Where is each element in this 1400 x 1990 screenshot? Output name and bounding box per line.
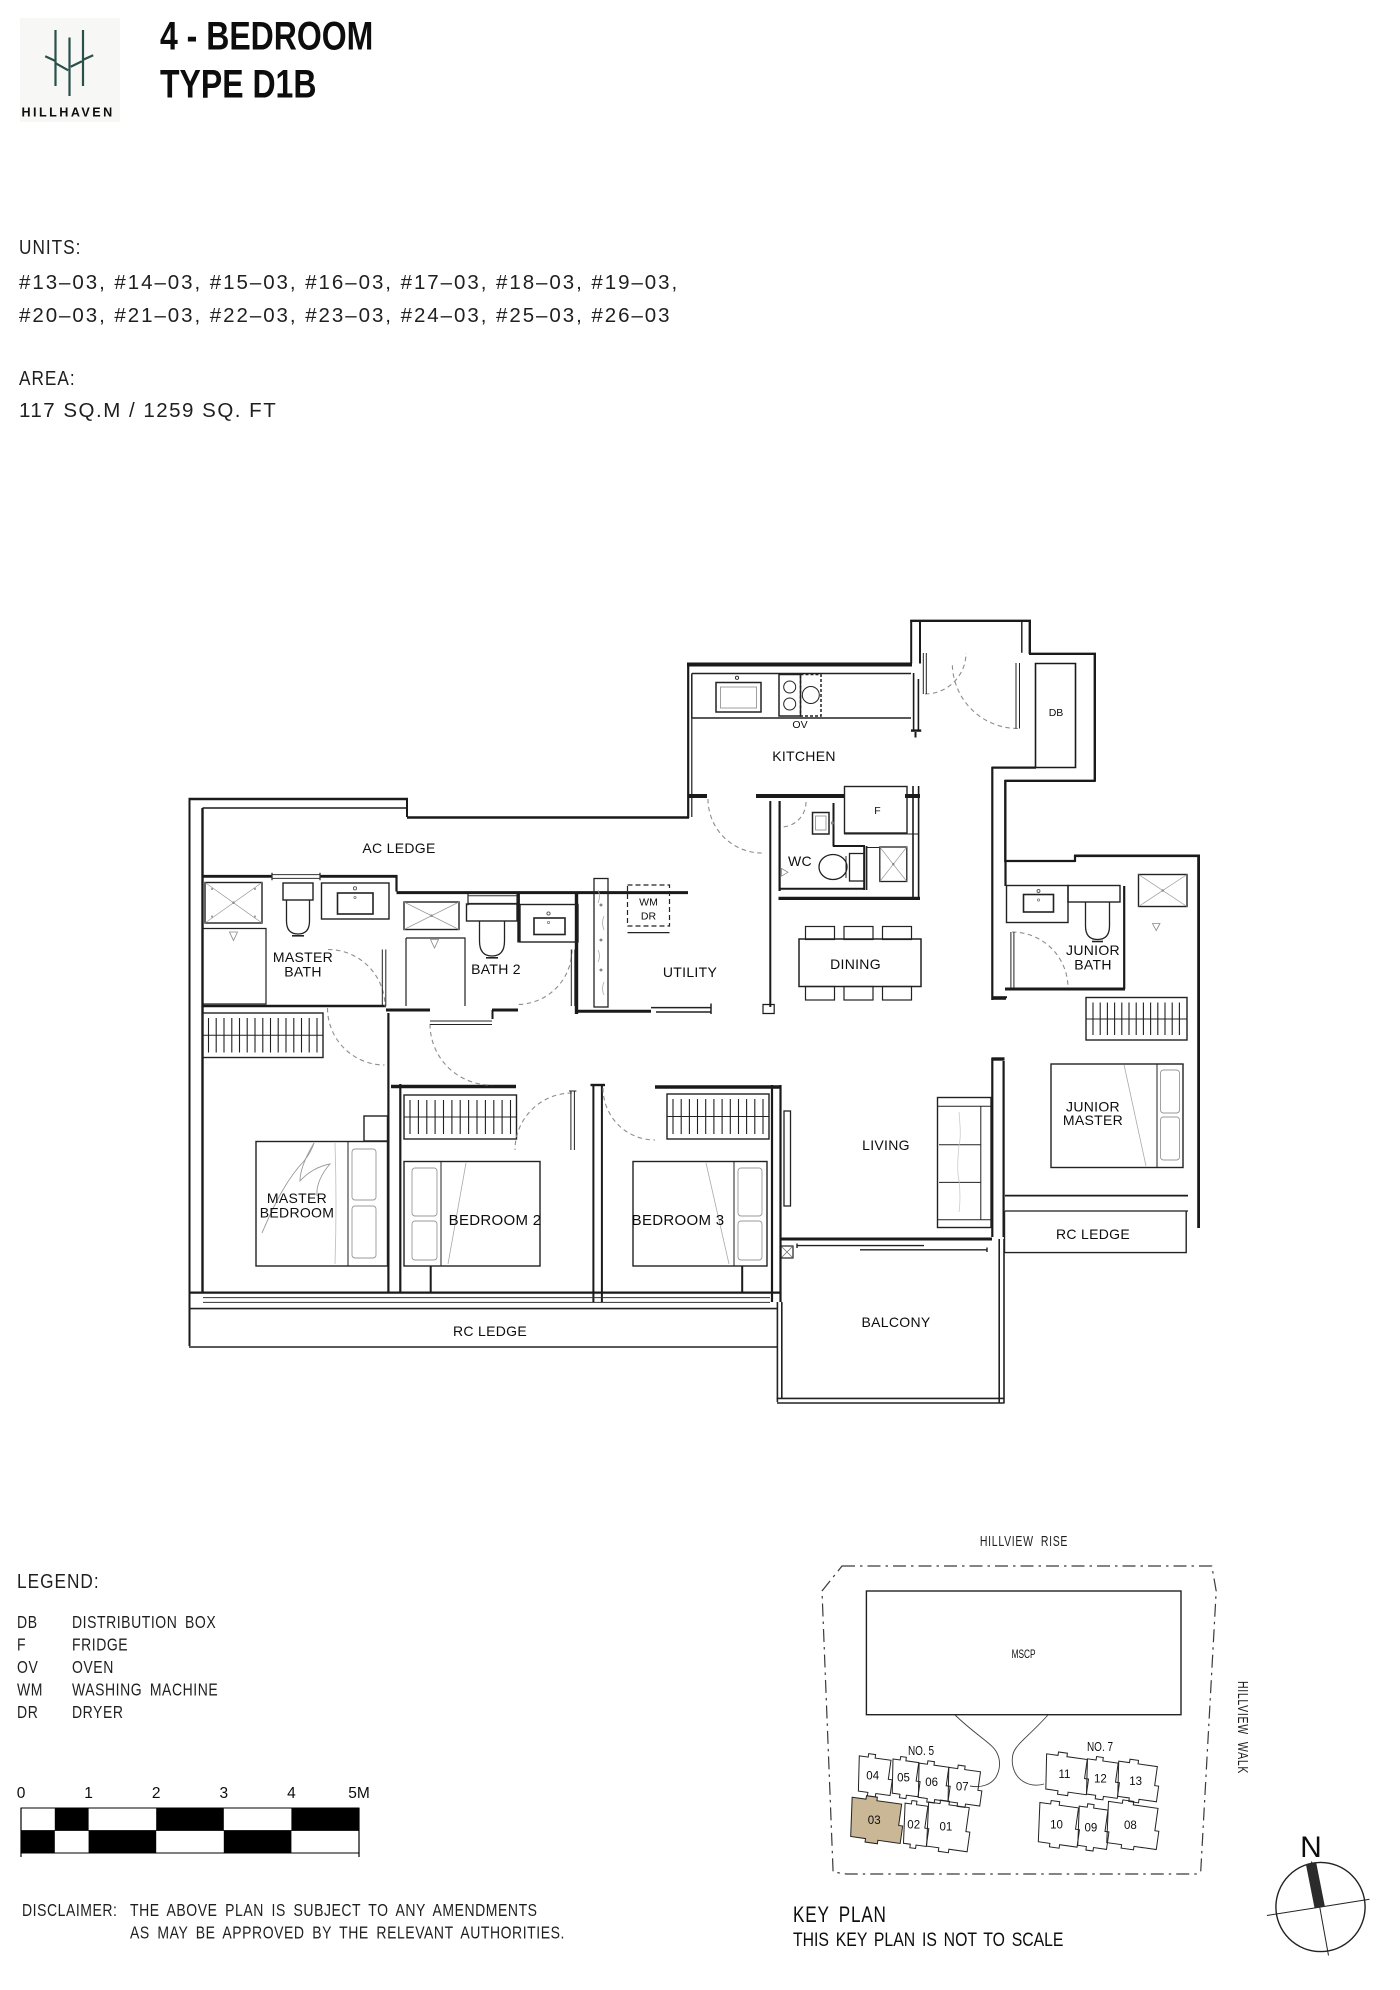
svg-text:4: 4 bbox=[287, 1785, 296, 1802]
svg-text:OV: OV bbox=[17, 1659, 38, 1678]
svg-text:MASTER: MASTER bbox=[1063, 1112, 1123, 1128]
svg-text:WM: WM bbox=[639, 897, 658, 909]
svg-text:WM: WM bbox=[17, 1681, 43, 1700]
svg-text:DISTRIBUTION BOX: DISTRIBUTION BOX bbox=[72, 1614, 216, 1633]
svg-text:117 SQ.M / 1259 SQ. FT: 117 SQ.M / 1259 SQ. FT bbox=[19, 399, 277, 422]
svg-text:OV: OV bbox=[792, 719, 807, 731]
svg-text:3: 3 bbox=[219, 1785, 228, 1802]
svg-text:THE ABOVE PLAN IS SUBJECT TO A: THE ABOVE PLAN IS SUBJECT TO ANY AMENDME… bbox=[130, 1902, 538, 1921]
svg-text:DR: DR bbox=[641, 911, 657, 923]
svg-text:06: 06 bbox=[925, 1777, 938, 1789]
svg-text:F: F bbox=[874, 805, 880, 817]
svg-text:07: 07 bbox=[956, 1781, 969, 1793]
svg-text:DINING: DINING bbox=[830, 956, 881, 972]
svg-text:NO. 7: NO. 7 bbox=[1087, 1741, 1113, 1754]
svg-text:DR: DR bbox=[17, 1704, 38, 1723]
svg-text:BATH: BATH bbox=[1074, 956, 1112, 972]
svg-text:04: 04 bbox=[866, 1770, 879, 1782]
svg-text:BATH 2: BATH 2 bbox=[471, 961, 521, 977]
svg-text:OVEN: OVEN bbox=[72, 1659, 114, 1678]
svg-text:12: 12 bbox=[1094, 1773, 1107, 1785]
svg-text:TYPE D1B: TYPE D1B bbox=[160, 61, 316, 106]
svg-text:2: 2 bbox=[152, 1785, 161, 1802]
svg-text:10: 10 bbox=[1050, 1820, 1063, 1832]
svg-text:09: 09 bbox=[1085, 1822, 1098, 1834]
svg-text:RC LEDGE: RC LEDGE bbox=[1056, 1226, 1130, 1242]
svg-text:DB: DB bbox=[17, 1614, 38, 1633]
svg-text:0: 0 bbox=[17, 1785, 26, 1802]
svg-text:1: 1 bbox=[84, 1785, 93, 1802]
svg-text:BEDROOM 3: BEDROOM 3 bbox=[632, 1212, 725, 1229]
svg-text:4 - BEDROOM: 4 - BEDROOM bbox=[160, 13, 373, 58]
svg-text:UNITS:: UNITS: bbox=[19, 237, 81, 260]
svg-text:HILLVIEW WALK: HILLVIEW WALK bbox=[1235, 1681, 1252, 1774]
svg-text:02: 02 bbox=[907, 1820, 920, 1832]
svg-text:BATH: BATH bbox=[284, 964, 322, 980]
svg-text:HILLVIEW RISE: HILLVIEW RISE bbox=[980, 1532, 1068, 1549]
svg-text:BEDROOM: BEDROOM bbox=[260, 1205, 334, 1221]
svg-text:03: 03 bbox=[868, 1815, 881, 1827]
svg-text:AC LEDGE: AC LEDGE bbox=[362, 840, 435, 856]
svg-text:#13–03, #14–03, #15–03, #16–03: #13–03, #14–03, #15–03, #16–03, #17–03, … bbox=[19, 271, 679, 294]
svg-text:KEY PLAN: KEY PLAN bbox=[793, 1903, 887, 1928]
svg-text:#20–03, #21–03, #22–03, #23–03: #20–03, #21–03, #22–03, #23–03, #24–03, … bbox=[19, 304, 672, 327]
svg-text:MSCP: MSCP bbox=[1012, 1649, 1036, 1662]
svg-text:FRIDGE: FRIDGE bbox=[72, 1636, 128, 1655]
svg-text:11: 11 bbox=[1059, 1769, 1071, 1781]
svg-text:LIVING: LIVING bbox=[862, 1137, 910, 1153]
svg-text:THIS KEY PLAN IS NOT TO SCALE: THIS KEY PLAN IS NOT TO SCALE bbox=[793, 1928, 1064, 1950]
svg-text:13: 13 bbox=[1129, 1776, 1142, 1788]
svg-text:F: F bbox=[17, 1636, 26, 1655]
svg-text:NO. 5: NO. 5 bbox=[908, 1745, 934, 1758]
svg-text:DISCLAIMER:: DISCLAIMER: bbox=[22, 1902, 118, 1921]
svg-text:BALCONY: BALCONY bbox=[861, 1314, 930, 1330]
svg-text:5M: 5M bbox=[348, 1785, 370, 1802]
svg-text:AREA:: AREA: bbox=[19, 368, 76, 391]
svg-text:RC LEDGE: RC LEDGE bbox=[453, 1323, 527, 1339]
svg-text:UTILITY: UTILITY bbox=[663, 964, 718, 980]
svg-text:WASHING MACHINE: WASHING MACHINE bbox=[72, 1681, 218, 1700]
svg-text:HILLHAVEN: HILLHAVEN bbox=[22, 106, 115, 120]
svg-text:KITCHEN: KITCHEN bbox=[772, 748, 836, 764]
svg-text:N: N bbox=[1300, 1831, 1322, 1864]
svg-text:01: 01 bbox=[940, 1822, 953, 1834]
svg-text:BEDROOM 2: BEDROOM 2 bbox=[449, 1212, 542, 1229]
svg-text:DRYER: DRYER bbox=[72, 1704, 124, 1723]
svg-text:AS MAY BE APPROVED BY THE RELE: AS MAY BE APPROVED BY THE RELEVANT AUTHO… bbox=[130, 1924, 565, 1943]
svg-text:LEGEND:: LEGEND: bbox=[17, 1571, 100, 1594]
svg-text:05: 05 bbox=[897, 1773, 910, 1785]
svg-text:08: 08 bbox=[1124, 1820, 1137, 1832]
svg-text:DB: DB bbox=[1049, 707, 1064, 719]
svg-text:WC: WC bbox=[788, 853, 812, 869]
